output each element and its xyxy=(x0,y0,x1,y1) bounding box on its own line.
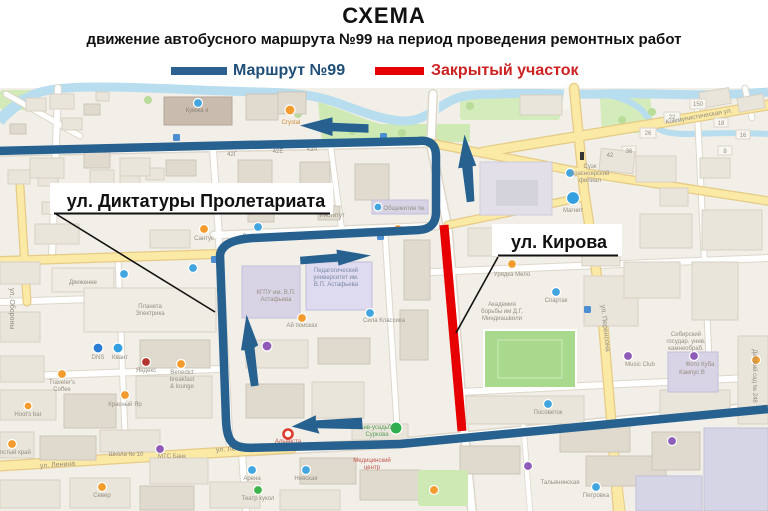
svg-text:DNS: DNS xyxy=(92,355,105,361)
svg-text:Магнит: Магнит xyxy=(563,208,583,214)
svg-text:Спартак: Спартак xyxy=(545,298,568,304)
svg-text:Академия: Академия xyxy=(488,302,516,308)
svg-text:Детский сад № 248: Детский сад № 248 xyxy=(751,349,758,403)
svg-text:Hoot's bar: Hoot's bar xyxy=(14,412,41,418)
svg-text:Benedict: Benedict xyxy=(170,370,194,376)
svg-text:Квант: Квант xyxy=(112,355,128,361)
svg-text:Кампус В: Кампус В xyxy=(679,370,705,376)
svg-text:Суэк: Суэк xyxy=(584,164,597,170)
svg-text:Сантус: Сантус xyxy=(194,236,214,242)
svg-text:Суркова: Суркова xyxy=(365,432,389,438)
svg-text:Медицинский: Медицинский xyxy=(353,457,391,464)
svg-text:42Е: 42Е xyxy=(273,149,284,155)
svg-text:Миндиашвили: Миндиашвили xyxy=(482,316,522,322)
svg-text:Толстый край: Толстый край xyxy=(0,449,31,456)
svg-text:камнеобраб.: камнеобраб. xyxy=(668,346,704,352)
svg-text:26: 26 xyxy=(645,131,652,137)
svg-text:Посоветок: Посоветок xyxy=(534,410,563,416)
svg-text:Кумжа я: Кумжа я xyxy=(186,108,209,114)
svg-text:16: 16 xyxy=(740,133,747,139)
svg-text:государ. унив.: государ. унив. xyxy=(666,339,706,345)
svg-text:Электрика: Электрика xyxy=(135,311,165,317)
svg-text:Crystal: Crystal xyxy=(282,120,301,126)
svg-text:ул. Диктатуры Пролетариата: ул. Диктатуры Пролетариата xyxy=(67,191,327,211)
svg-text:Красноярский: Красноярский xyxy=(571,170,610,177)
svg-text:ул. Кирова: ул. Кирова xyxy=(511,232,608,252)
svg-text:Яндекс: Яндекс xyxy=(136,368,156,374)
svg-text:Театр кукол: Театр кукол xyxy=(242,496,275,502)
svg-text:Север: Север xyxy=(93,493,111,499)
svg-text:Анв-усадьба: Анв-усадьба xyxy=(359,425,395,431)
svg-text:Петровка: Петровка xyxy=(583,493,610,499)
svg-text:борьбы им Д.Г.: борьбы им Д.Г. xyxy=(481,309,523,315)
svg-text:Общежитие №: Общежитие № xyxy=(383,205,424,212)
svg-text:Школа № 10: Школа № 10 xyxy=(109,451,144,458)
svg-text:МТС Банк: МТС Банк xyxy=(158,454,186,460)
svg-text:Астафьева: Астафьева xyxy=(261,297,293,303)
svg-text:& lounge: & lounge xyxy=(170,384,194,390)
svg-text:Ай поисках: Ай поисках xyxy=(286,322,317,329)
svg-text:Планета: Планета xyxy=(138,304,162,310)
svg-text:В.П. Астафьева: В.П. Астафьева xyxy=(314,282,359,288)
svg-text:Фото Куба: Фото Куба xyxy=(686,362,715,368)
svg-text:Движение: Движение xyxy=(69,280,98,286)
svg-text:42Г: 42Г xyxy=(227,152,238,158)
svg-text:Music Club: Music Club xyxy=(625,362,655,368)
svg-text:Traveler's: Traveler's xyxy=(49,380,75,386)
svg-text:Сибирский: Сибирский xyxy=(671,331,701,338)
svg-text:филиал: филиал xyxy=(579,178,601,184)
svg-text:36: 36 xyxy=(626,149,633,155)
svg-text:ул. Обороны: ул. Обороны xyxy=(8,288,16,329)
svg-text:Тальянинская: Тальянинская xyxy=(541,480,580,486)
svg-text:Красный Яр: Красный Яр xyxy=(108,401,142,408)
svg-text:Урядка Мело: Урядка Мело xyxy=(494,272,531,278)
svg-text:18: 18 xyxy=(718,121,725,127)
svg-text:42: 42 xyxy=(607,153,614,159)
svg-text:150: 150 xyxy=(693,102,704,108)
svg-text:Педагогический: Педагогический xyxy=(314,267,358,274)
svg-text:43А: 43А xyxy=(307,147,318,153)
svg-text:КГПУ им. В.П.: КГПУ им. В.П. xyxy=(257,290,296,296)
svg-text:центр: центр xyxy=(364,465,381,471)
svg-text:Coffee: Coffee xyxy=(53,387,71,393)
svg-text:Арена: Арена xyxy=(243,476,261,482)
svg-text:Невская: Невская xyxy=(294,476,317,482)
svg-text:университет им.: университет им. xyxy=(313,275,359,281)
svg-text:Сила Классика: Сила Классика xyxy=(363,318,406,324)
svg-text:breakfast: breakfast xyxy=(170,377,195,383)
